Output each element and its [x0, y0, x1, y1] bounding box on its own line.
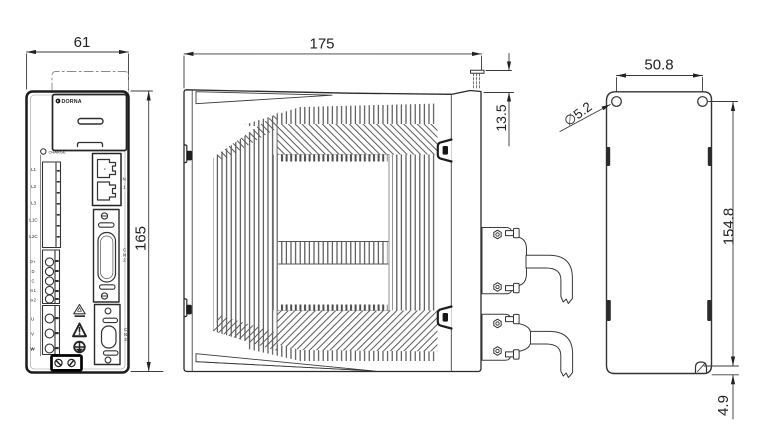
svg-text:154.8: 154.8 [720, 208, 737, 246]
svg-text:W: W [30, 346, 35, 351]
svg-text:N: N [123, 177, 126, 182]
svg-text:c: c [104, 167, 106, 171]
svg-text:D: D [31, 269, 34, 274]
svg-text:61: 61 [74, 34, 91, 51]
svg-text:CHARGE: CHARGE [49, 149, 66, 154]
svg-text:⊖1: ⊖1 [30, 288, 37, 293]
svg-text:U: U [31, 316, 34, 321]
svg-text:4.9: 4.9 [715, 395, 732, 416]
svg-text:165: 165 [133, 226, 150, 251]
svg-text:⊖2: ⊖2 [30, 298, 37, 303]
svg-text:1: 1 [123, 185, 126, 190]
svg-text:50.8: 50.8 [644, 57, 673, 74]
svg-text:13.5: 13.5 [493, 104, 509, 131]
svg-text:L1C: L1C [29, 218, 38, 223]
svg-text:DORNA: DORNA [62, 99, 82, 105]
svg-text:L2C: L2C [29, 234, 38, 239]
svg-text:175: 175 [309, 36, 334, 53]
svg-text:C: C [31, 279, 34, 284]
svg-text:P+: P+ [30, 260, 36, 265]
svg-text:L1: L1 [31, 167, 37, 172]
svg-text:L2: L2 [31, 184, 37, 189]
svg-text:L3: L3 [31, 201, 37, 206]
